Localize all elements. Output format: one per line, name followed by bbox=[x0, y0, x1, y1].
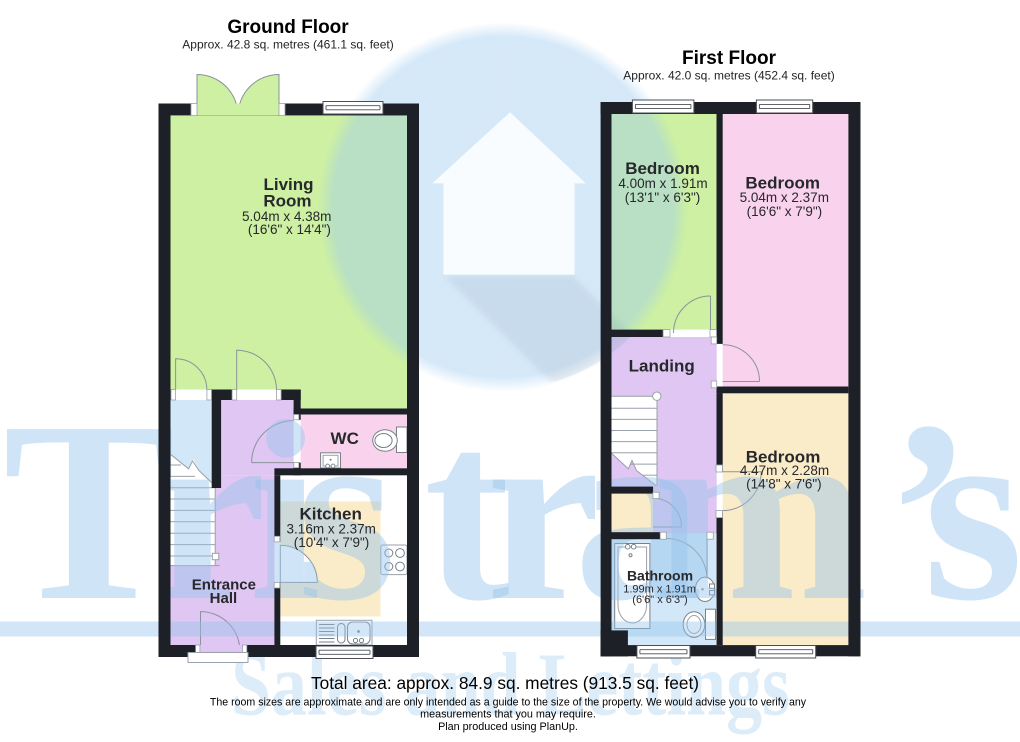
svg-text:Approx. 42.8 sq. metres (461.1: Approx. 42.8 sq. metres (461.1 sq. feet) bbox=[182, 38, 393, 52]
svg-text:measurements that you may requ: measurements that you may require. bbox=[420, 709, 596, 721]
svg-text:Hall: Hall bbox=[210, 590, 238, 607]
svg-text:(14'8" x 7'6"): (14'8" x 7'6") bbox=[746, 477, 822, 492]
svg-text:First Floor: First Floor bbox=[682, 48, 777, 69]
svg-text:(16'6" x 14'4"): (16'6" x 14'4") bbox=[248, 222, 331, 237]
svg-text:Ground Floor: Ground Floor bbox=[227, 17, 349, 38]
svg-text:Total area: approx. 84.9 sq. m: Total area: approx. 84.9 sq. metres (913… bbox=[311, 673, 699, 693]
svg-text:(16'6" x 7'9"): (16'6" x 7'9") bbox=[747, 204, 823, 219]
svg-text:Landing: Landing bbox=[629, 356, 695, 375]
svg-text:Tristram’s: Tristram’s bbox=[3, 368, 1020, 654]
svg-text:Bathroom: Bathroom bbox=[627, 568, 693, 584]
svg-text:The room sizes are approximate: The room sizes are approximate and are o… bbox=[210, 697, 807, 709]
svg-text:WC: WC bbox=[331, 429, 359, 448]
svg-text:4.00m x 1.91m: 4.00m x 1.91m bbox=[618, 176, 707, 191]
svg-text:Room: Room bbox=[263, 191, 311, 210]
svg-text:Approx. 42.0 sq. metres (452.4: Approx. 42.0 sq. metres (452.4 sq. feet) bbox=[623, 69, 834, 83]
svg-text:5.04m x 2.37m: 5.04m x 2.37m bbox=[740, 190, 829, 205]
svg-text:(10'4" x 7'9"): (10'4" x 7'9") bbox=[294, 535, 370, 550]
svg-text:Plan produced using PlanUp.: Plan produced using PlanUp. bbox=[438, 721, 578, 733]
svg-text:(13'1" x 6'3"): (13'1" x 6'3") bbox=[625, 190, 701, 205]
svg-text:(6'6" x 6'3"): (6'6" x 6'3") bbox=[632, 594, 687, 606]
